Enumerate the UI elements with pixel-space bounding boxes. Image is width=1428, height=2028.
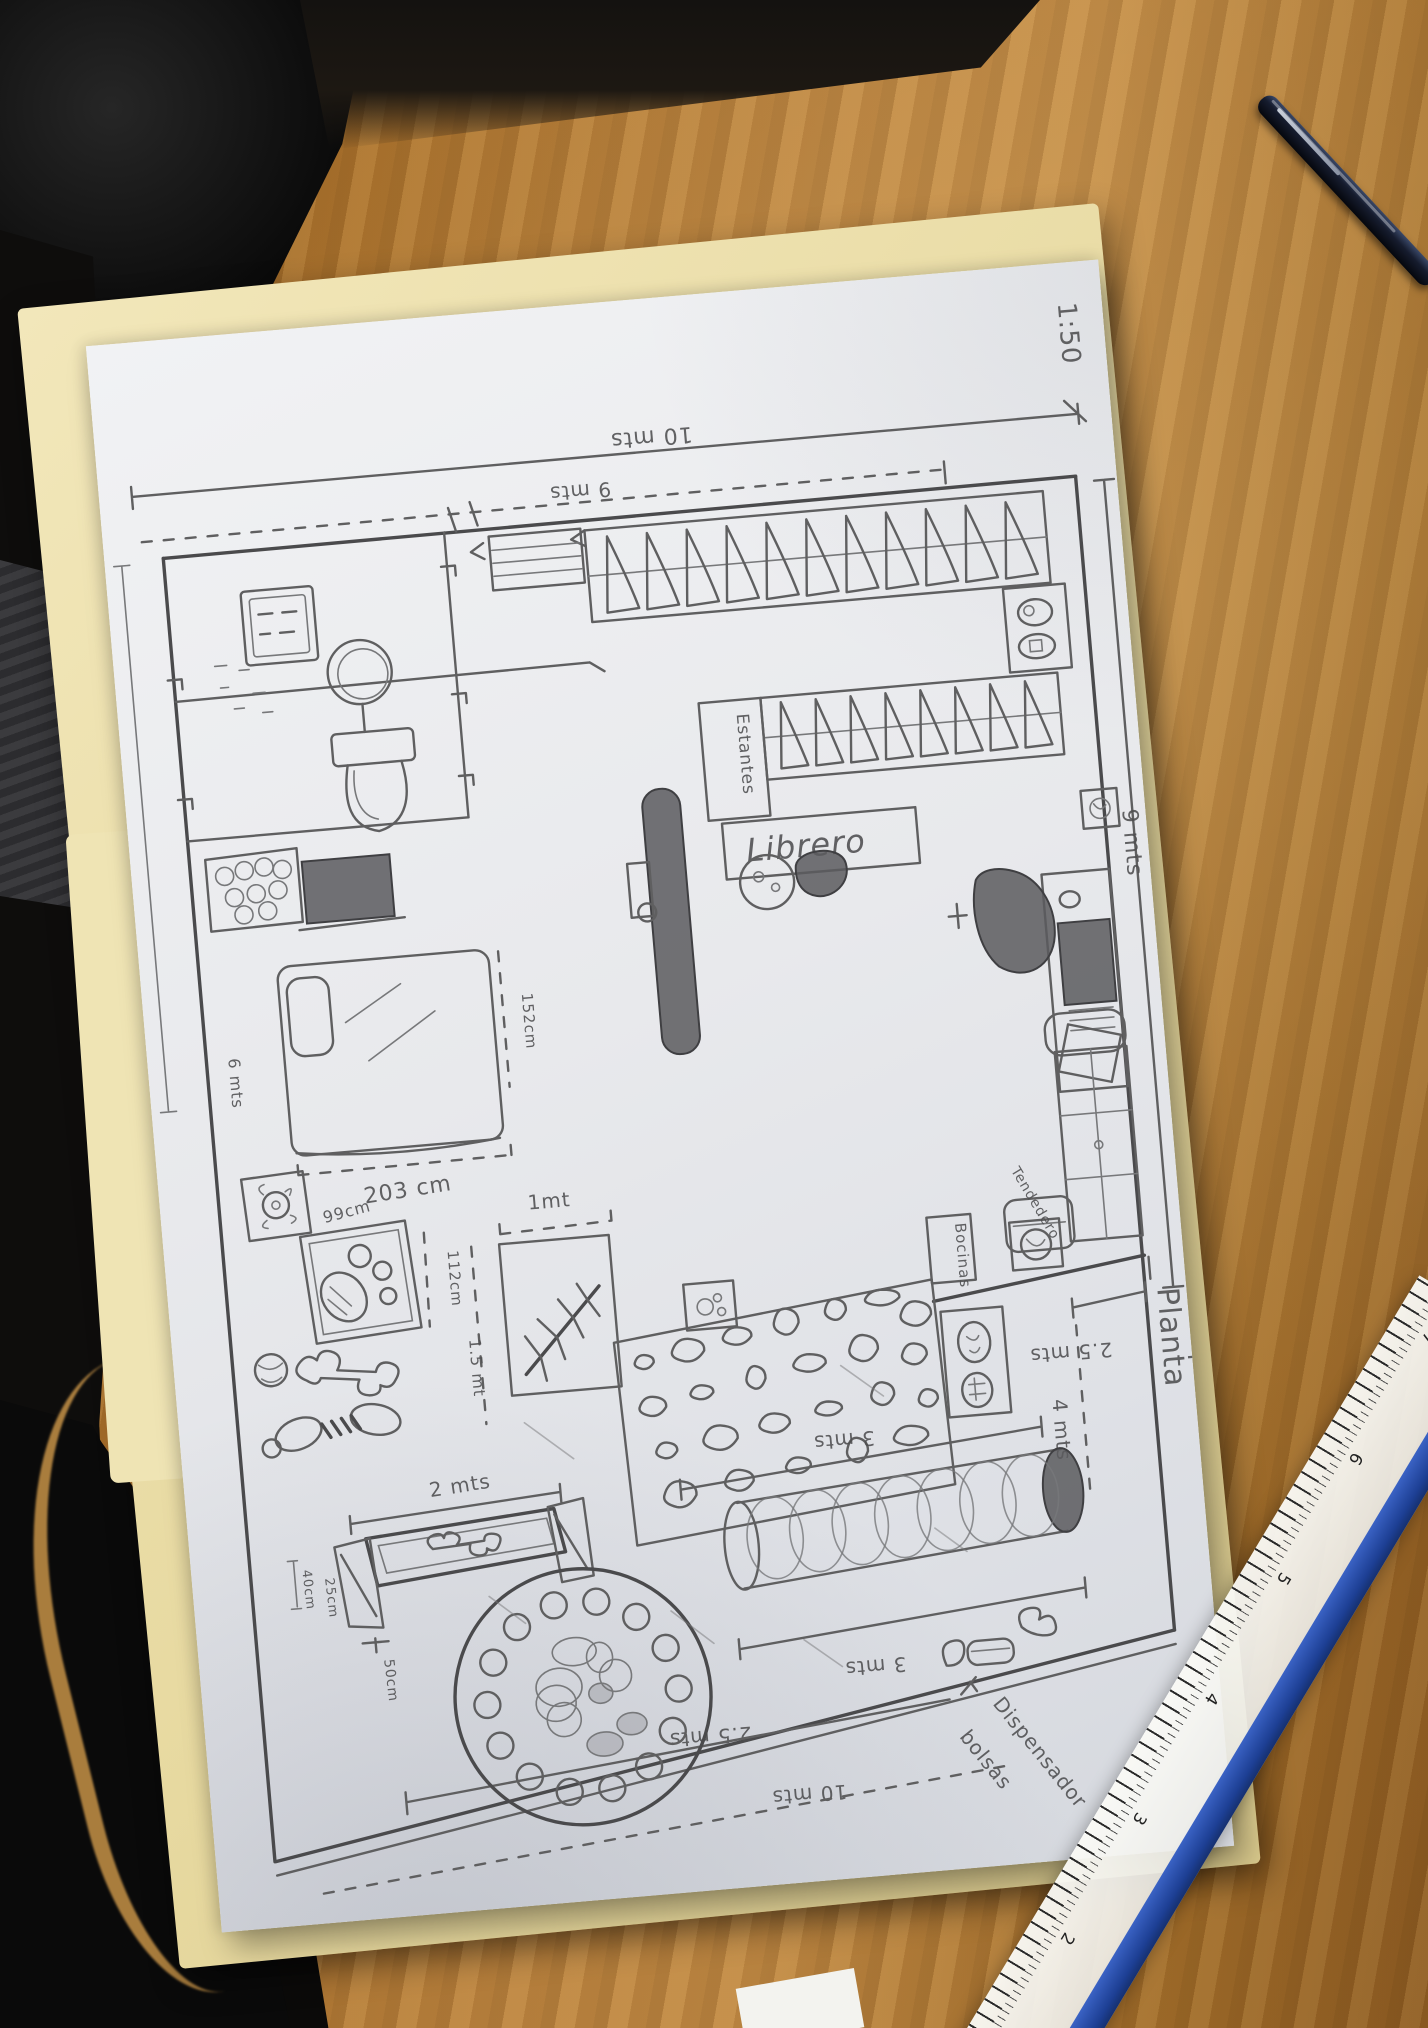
dim-bench-d3: 50cm	[362, 1637, 401, 1705]
window-ticks	[448, 502, 478, 532]
pillow	[286, 976, 335, 1057]
dim-tunnel-top: 3 mts	[677, 1412, 1046, 1500]
bag-dispenser-sketch: Dispensador bolsas	[940, 1604, 1094, 1823]
dog-bed	[300, 1221, 421, 1344]
scale-note: 1:50	[1051, 301, 1086, 366]
water-marks	[215, 662, 273, 716]
closet-row-bottom	[760, 673, 1064, 780]
floor-plan-sketch: 1:50 10 mts 9 mts	[86, 260, 1234, 1933]
stone-rug	[611, 1279, 958, 1546]
dim-tree-width: 1mt	[527, 1187, 572, 1215]
closet-row-top	[584, 491, 1050, 622]
bed	[277, 949, 505, 1161]
bench-ramp	[332, 1498, 597, 1631]
firewood-pile	[205, 848, 303, 932]
dim-patio-width: 2.5 mts	[1024, 1282, 1151, 1368]
bench-d-bracket	[287, 1561, 301, 1610]
dim-dogbed-width: 99cm	[321, 1196, 373, 1227]
ruler-number: 2	[1055, 1929, 1078, 1949]
dim-bench-d1: 40cm	[298, 1569, 318, 1611]
svg-text:9 mts: 9 mts	[1116, 808, 1147, 877]
tendedero-box: Tendedero	[1004, 1160, 1065, 1270]
svg-text:2 mts: 2 mts	[427, 1469, 492, 1502]
ball-pit-bush	[445, 1558, 722, 1835]
bone-toy	[293, 1330, 403, 1416]
dim-bed-length: 152cm	[498, 948, 543, 1086]
dim-left-height: 6 mts	[224, 1057, 247, 1109]
stairs-icon	[470, 529, 585, 592]
wall-box-icon	[1080, 788, 1119, 829]
svg-text:112cm: 112cm	[443, 1250, 466, 1308]
svg-text:2.5 mts: 2.5 mts	[668, 1722, 753, 1753]
ruler-number: 3	[1128, 1809, 1151, 1829]
svg-text:3 mts: 3 mts	[812, 1426, 876, 1455]
svg-text:50cm: 50cm	[380, 1658, 401, 1703]
svg-text:152cm: 152cm	[518, 992, 541, 1050]
flower-box	[241, 1171, 311, 1241]
dog-bowls-box	[940, 1307, 1011, 1418]
closet-corner-box	[1003, 584, 1072, 673]
estantes-label: Estantes	[732, 713, 759, 796]
dim-bench-d2: 25cm	[321, 1577, 341, 1619]
toilet-icon	[331, 728, 421, 835]
estantes-box: Estantes	[699, 698, 771, 821]
bocinas-box: Bocinas	[926, 1214, 976, 1291]
svg-text:3 mts: 3 mts	[844, 1652, 908, 1681]
dim-dogbed-height: 112cm	[422, 1230, 468, 1327]
rope-toy	[259, 1397, 406, 1459]
bench-left-wedge	[334, 1538, 384, 1631]
ruler-number: 4	[1200, 1689, 1223, 1709]
ruler-number: 5	[1272, 1569, 1295, 1589]
dispensador-label-1: Dispensador	[988, 1692, 1092, 1813]
svg-text:203 cm: 203 cm	[362, 1171, 453, 1209]
dim-tree-height: 1.5 mt	[465, 1338, 489, 1398]
sketch-paper: 1:50 10 mts 9 mts	[86, 260, 1234, 1933]
ruler-number: 6	[1344, 1449, 1367, 1469]
svg-text:10 mts: 10 mts	[771, 1780, 848, 1810]
scratch-tree: 1mt 1.5 mt	[453, 1184, 628, 1425]
svg-text:2.5 mts: 2.5 mts	[1029, 1337, 1114, 1368]
photo-scene: 1:50 10 mts 9 mts	[0, 0, 1428, 2028]
ball-toy	[254, 1353, 289, 1388]
dispensador-label-2: bolsas	[955, 1725, 1017, 1794]
kitchen-bar	[621, 787, 702, 1057]
svg-text:9 mts: 9 mts	[548, 477, 612, 506]
outer-walls	[163, 476, 1189, 1875]
stove-icon	[302, 854, 395, 923]
washing-machine-icon	[240, 586, 318, 666]
